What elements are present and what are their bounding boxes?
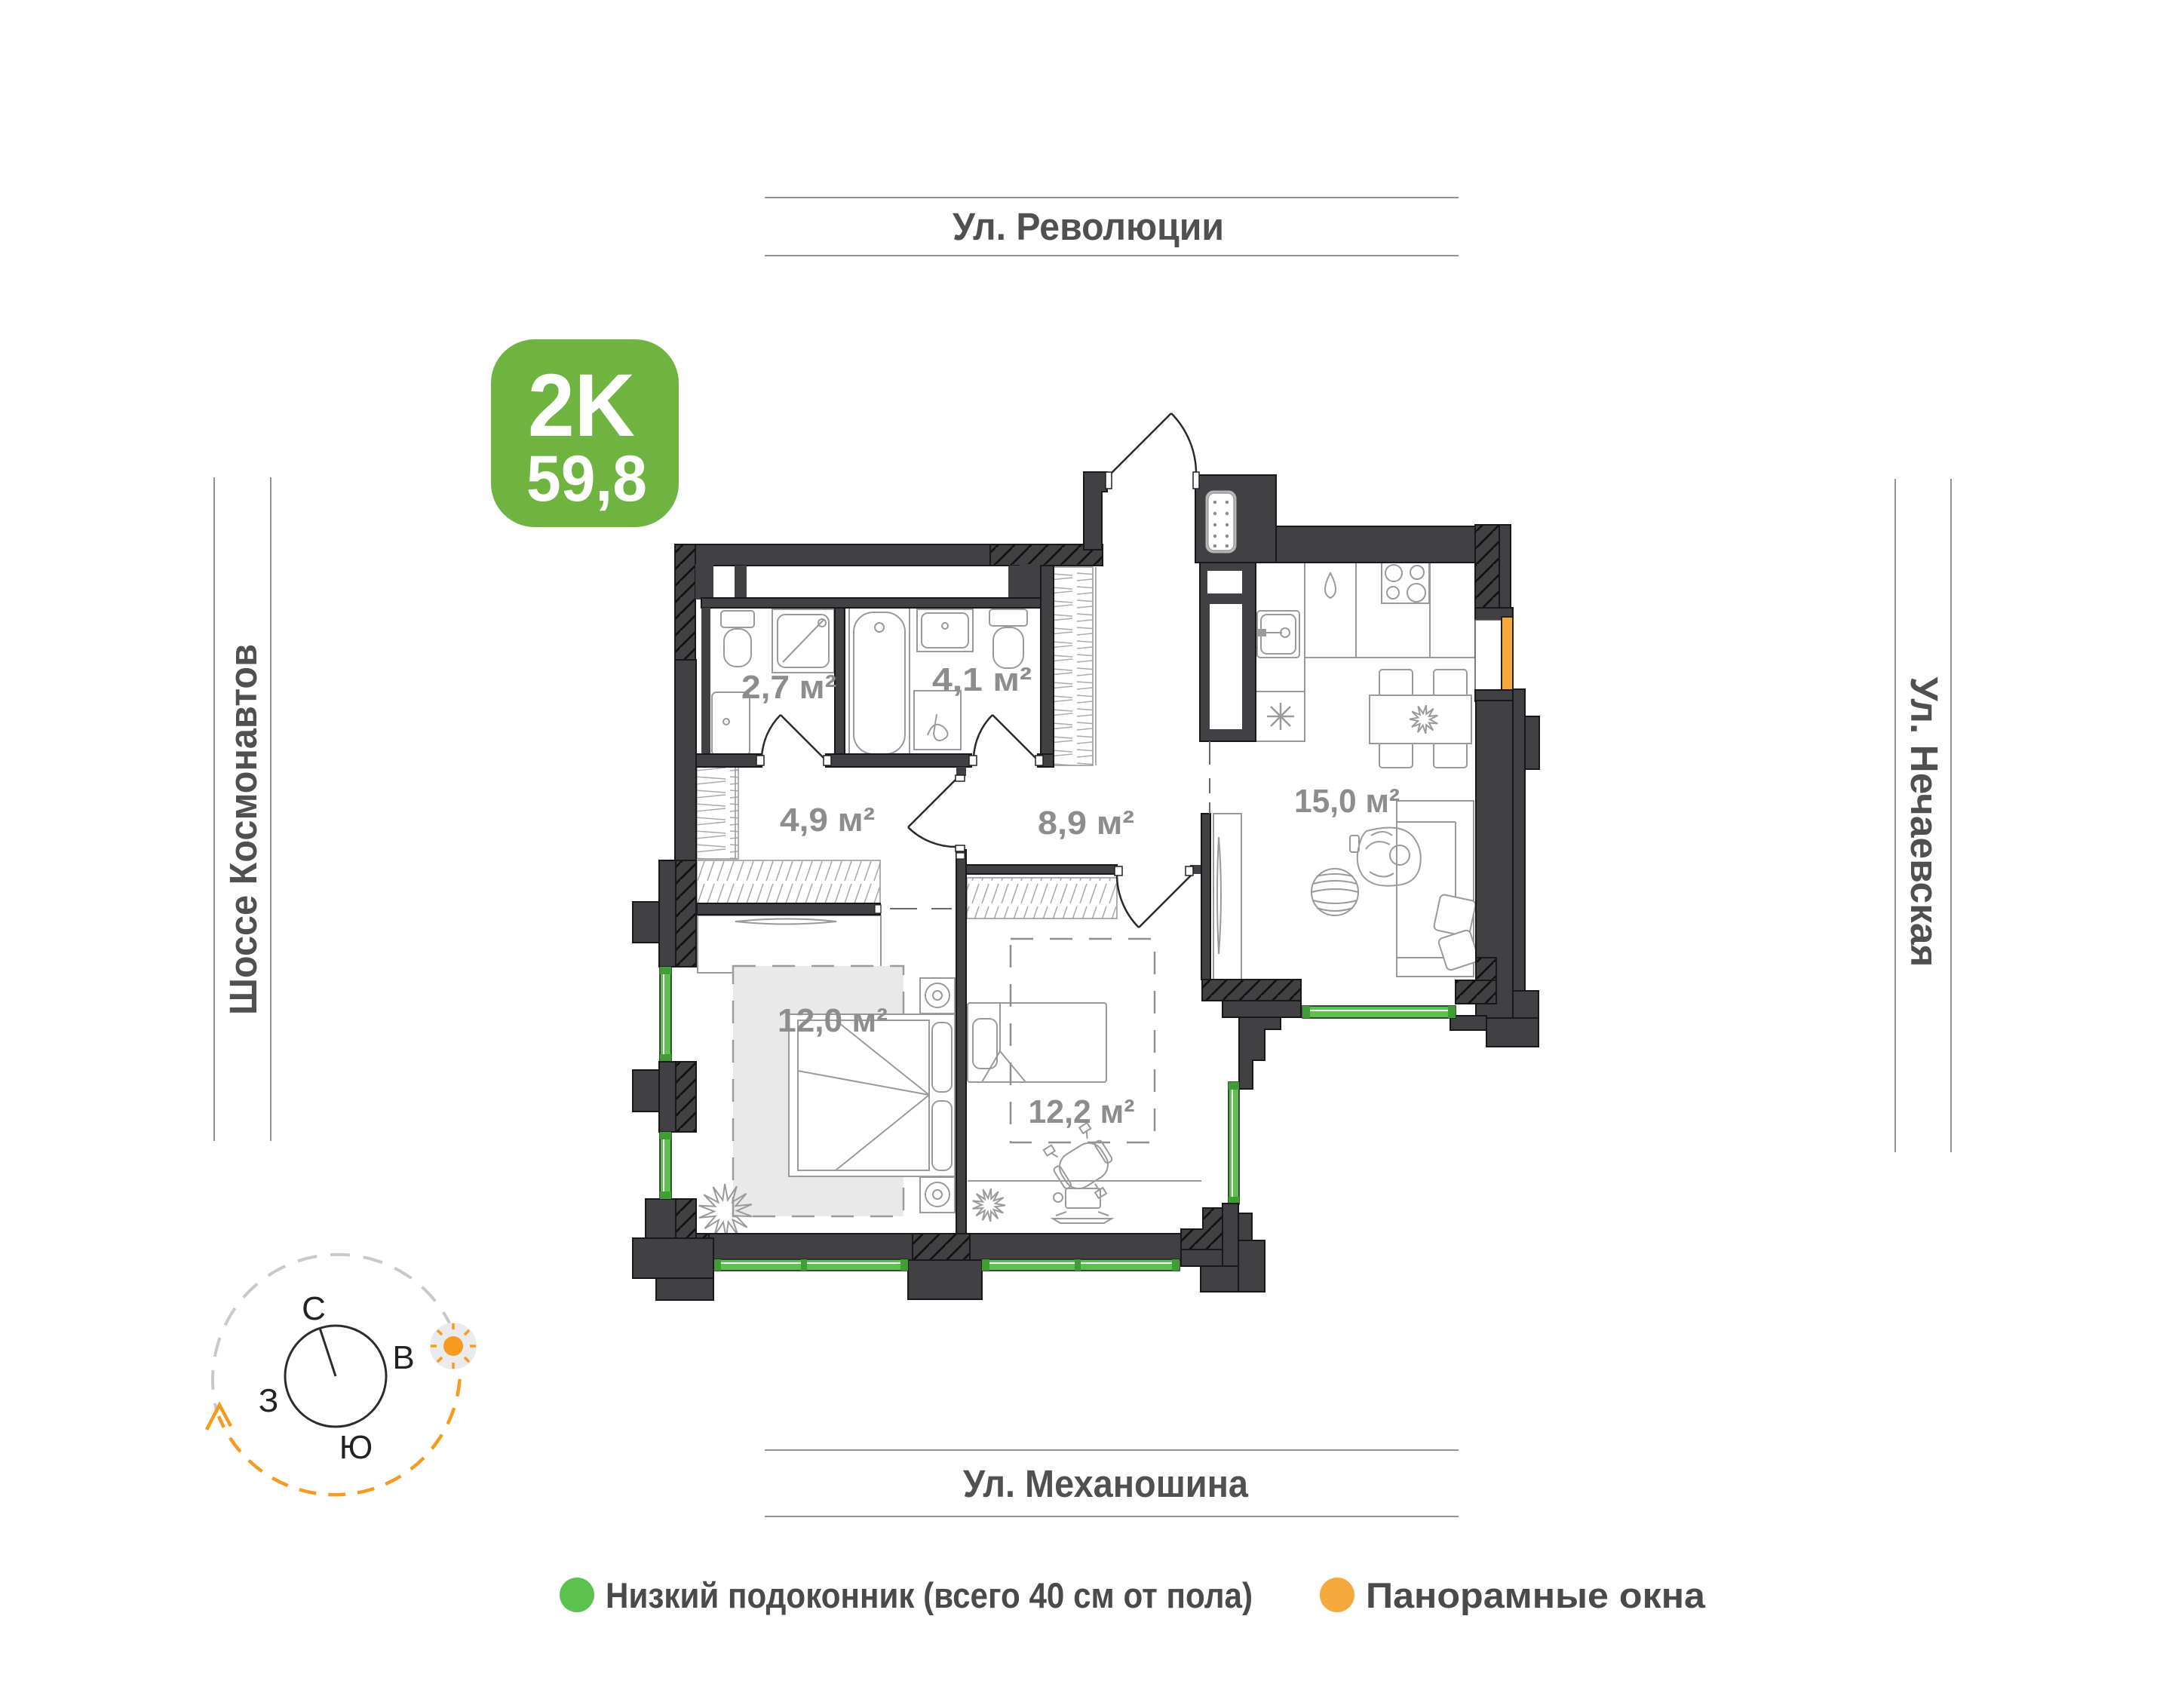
svg-text:С: С [302, 1290, 326, 1327]
svg-text:З: З [259, 1382, 279, 1419]
svg-text:12,0 м²: 12,0 м² [778, 1002, 888, 1039]
svg-text:В: В [392, 1339, 414, 1376]
svg-text:Ул. Нечаевская: Ул. Нечаевская [1903, 677, 1946, 967]
svg-text:15,0 м²: 15,0 м² [1294, 783, 1400, 820]
svg-text:8,9 м²: 8,9 м² [1038, 805, 1134, 842]
svg-text:Панорамные окна: Панорамные окна [1366, 1575, 1706, 1615]
svg-text:Ю: Ю [339, 1429, 373, 1466]
svg-text:Низкий подоконник (всего 40 см: Низкий подоконник (всего 40 см от пола) [606, 1575, 1253, 1615]
svg-text:2K: 2K [528, 356, 635, 455]
svg-text:Шоссе Космонавтов: Шоссе Космонавтов [222, 644, 265, 1015]
svg-text:4,1 м²: 4,1 м² [932, 661, 1032, 698]
svg-text:Ул. Механошина: Ул. Механошина [963, 1462, 1249, 1505]
svg-text:2,7 м²: 2,7 м² [741, 669, 836, 706]
svg-text:Ул. Революции: Ул. Революции [953, 205, 1224, 248]
svg-text:4,9 м²: 4,9 м² [780, 802, 875, 839]
svg-text:59,8: 59,8 [526, 443, 647, 515]
svg-text:12,2 м²: 12,2 м² [1029, 1093, 1135, 1130]
